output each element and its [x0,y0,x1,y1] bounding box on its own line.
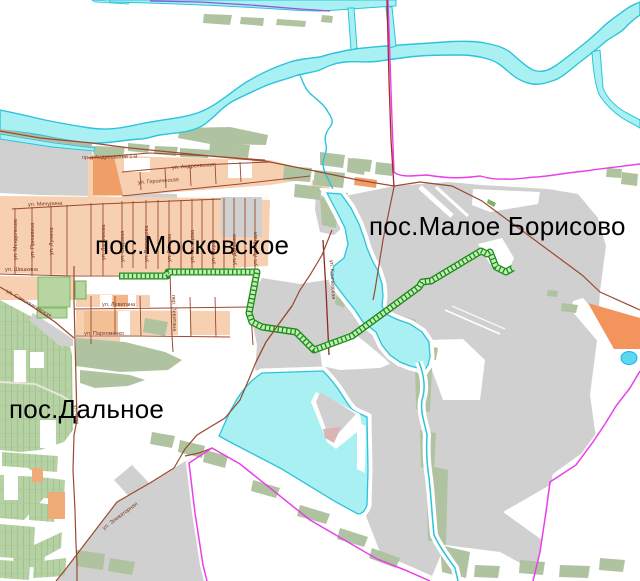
svg-text:ул. Левитана: ул. Левитана [102,302,136,308]
svg-text:пос.Московское: пос.Московское [95,230,289,260]
svg-text:пос.Малое Борисово: пос.Малое Борисово [369,211,626,241]
svg-text:ул. Пархоменко: ул. Пархоменко [84,331,124,337]
svg-text:пр-д Андреевский 1-й: пр-д Андреевский 1-й [82,153,137,161]
svg-text:ул. Шишкина: ул. Шишкина [5,267,39,273]
svg-text:пос.Дальное: пос.Дальное [9,394,164,424]
svg-text:ул. Пришвина: ул. Пришвина [30,222,36,258]
svg-text:ул. Менделеева: ул. Менделеева [13,218,19,260]
svg-text:ул. Лунина: ул. Лунина [49,227,55,255]
svg-text:ул. Мичурина: ул. Мичурина [28,201,63,208]
